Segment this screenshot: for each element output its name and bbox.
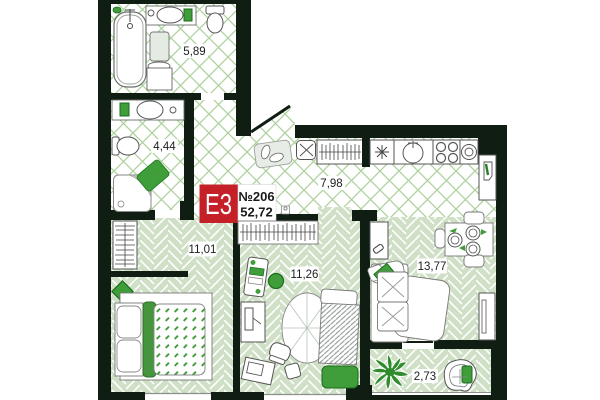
- svg-text:7,98: 7,98: [320, 178, 342, 190]
- svg-text:Е3: Е3: [205, 189, 232, 221]
- svg-text:4,44: 4,44: [153, 141, 176, 153]
- svg-text:13,77: 13,77: [418, 261, 447, 273]
- svg-text:№206: №206: [238, 189, 274, 204]
- svg-text:5,89: 5,89: [183, 46, 205, 58]
- svg-text:2,73: 2,73: [414, 371, 436, 383]
- svg-text:11,01: 11,01: [189, 244, 217, 256]
- svg-text:52,72: 52,72: [240, 205, 273, 220]
- svg-text:11,26: 11,26: [291, 269, 319, 281]
